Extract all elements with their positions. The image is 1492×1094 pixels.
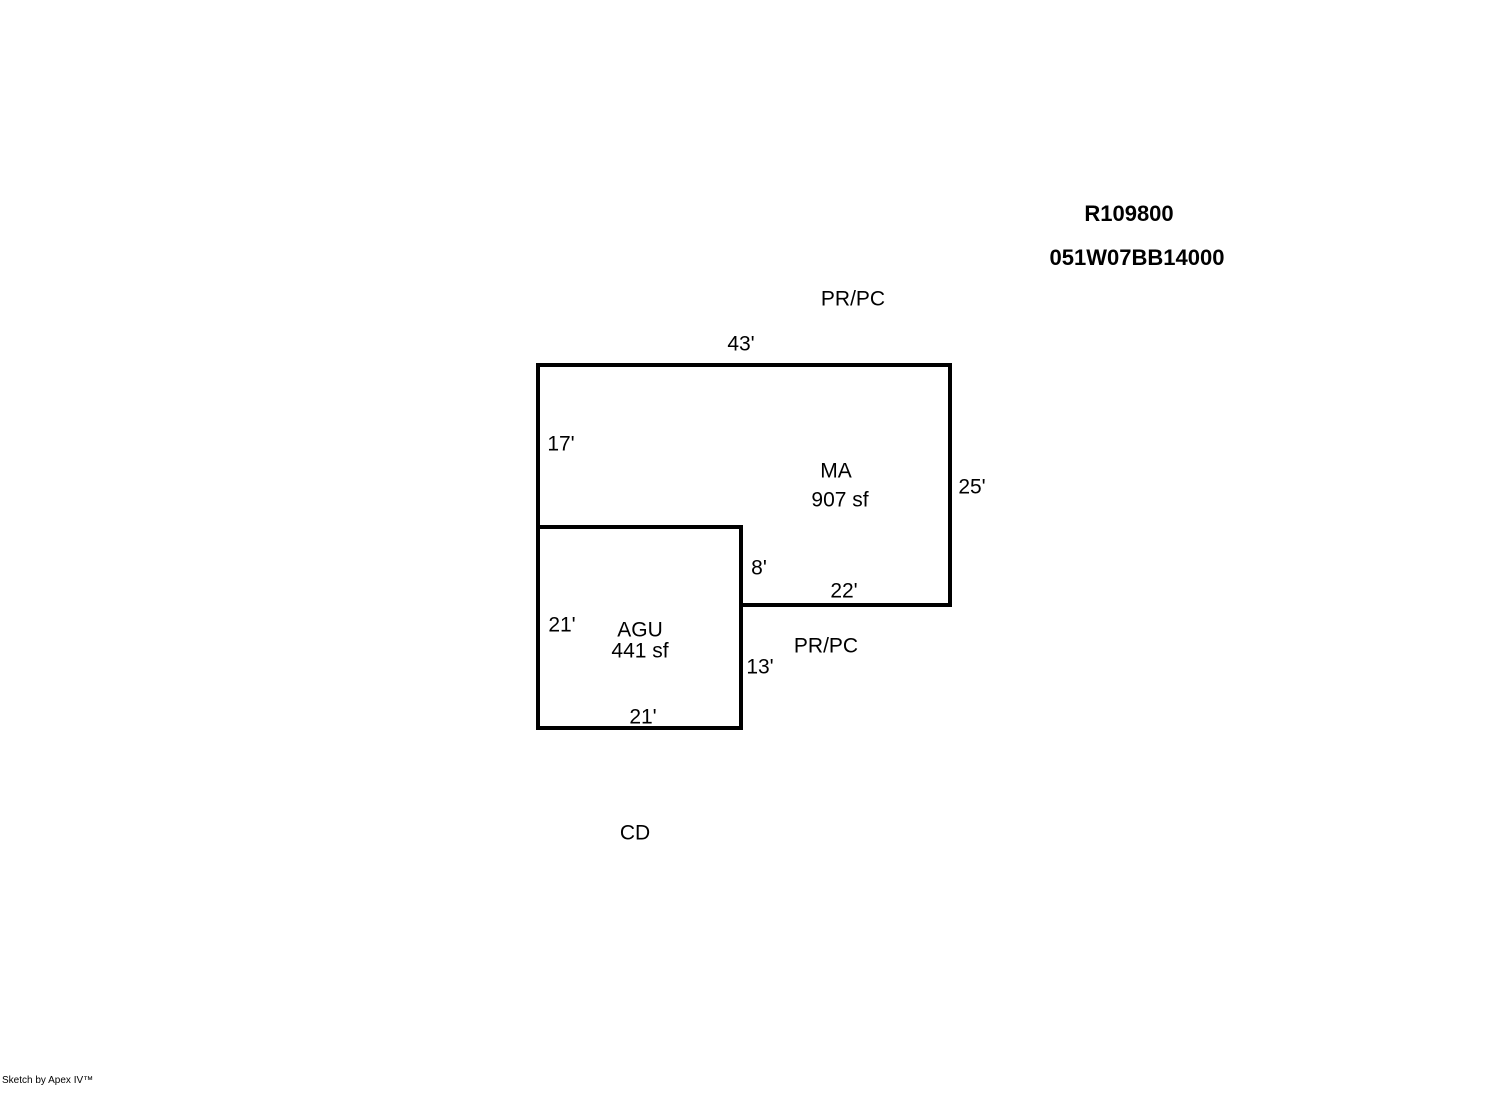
- ma-code-label: MA: [820, 461, 852, 482]
- map-taxlot-label: 051W07BB14000: [1050, 247, 1225, 269]
- agu-dim-bottom: 21': [629, 707, 656, 728]
- ma-area-label: 907 sf: [811, 490, 868, 511]
- ma-dim-right: 25': [958, 477, 985, 498]
- apex-watermark: Sketch by Apex IV™: [2, 1076, 93, 1086]
- ma-dim-bottom: 22': [830, 581, 857, 602]
- account-number-label: R109800: [1084, 203, 1173, 225]
- agu-area-label: 441 sf: [611, 641, 668, 662]
- agu-dim-left: 21': [548, 615, 575, 636]
- prpc-annotation-top: PR/PC: [821, 289, 885, 310]
- prpc-annotation-middle: PR/PC: [794, 636, 858, 657]
- ma-dim-top: 43': [727, 334, 754, 355]
- agu-dim-right: 13': [746, 657, 773, 678]
- ma-dim-left: 17': [547, 434, 574, 455]
- cd-annotation: CD: [620, 823, 650, 844]
- sketch-canvas: R109800 051W07BB14000 PR/PC PR/PC CD 43'…: [0, 0, 1492, 1094]
- ma-dim-notch: 8': [751, 558, 767, 579]
- agu-code-label: AGU: [617, 620, 663, 641]
